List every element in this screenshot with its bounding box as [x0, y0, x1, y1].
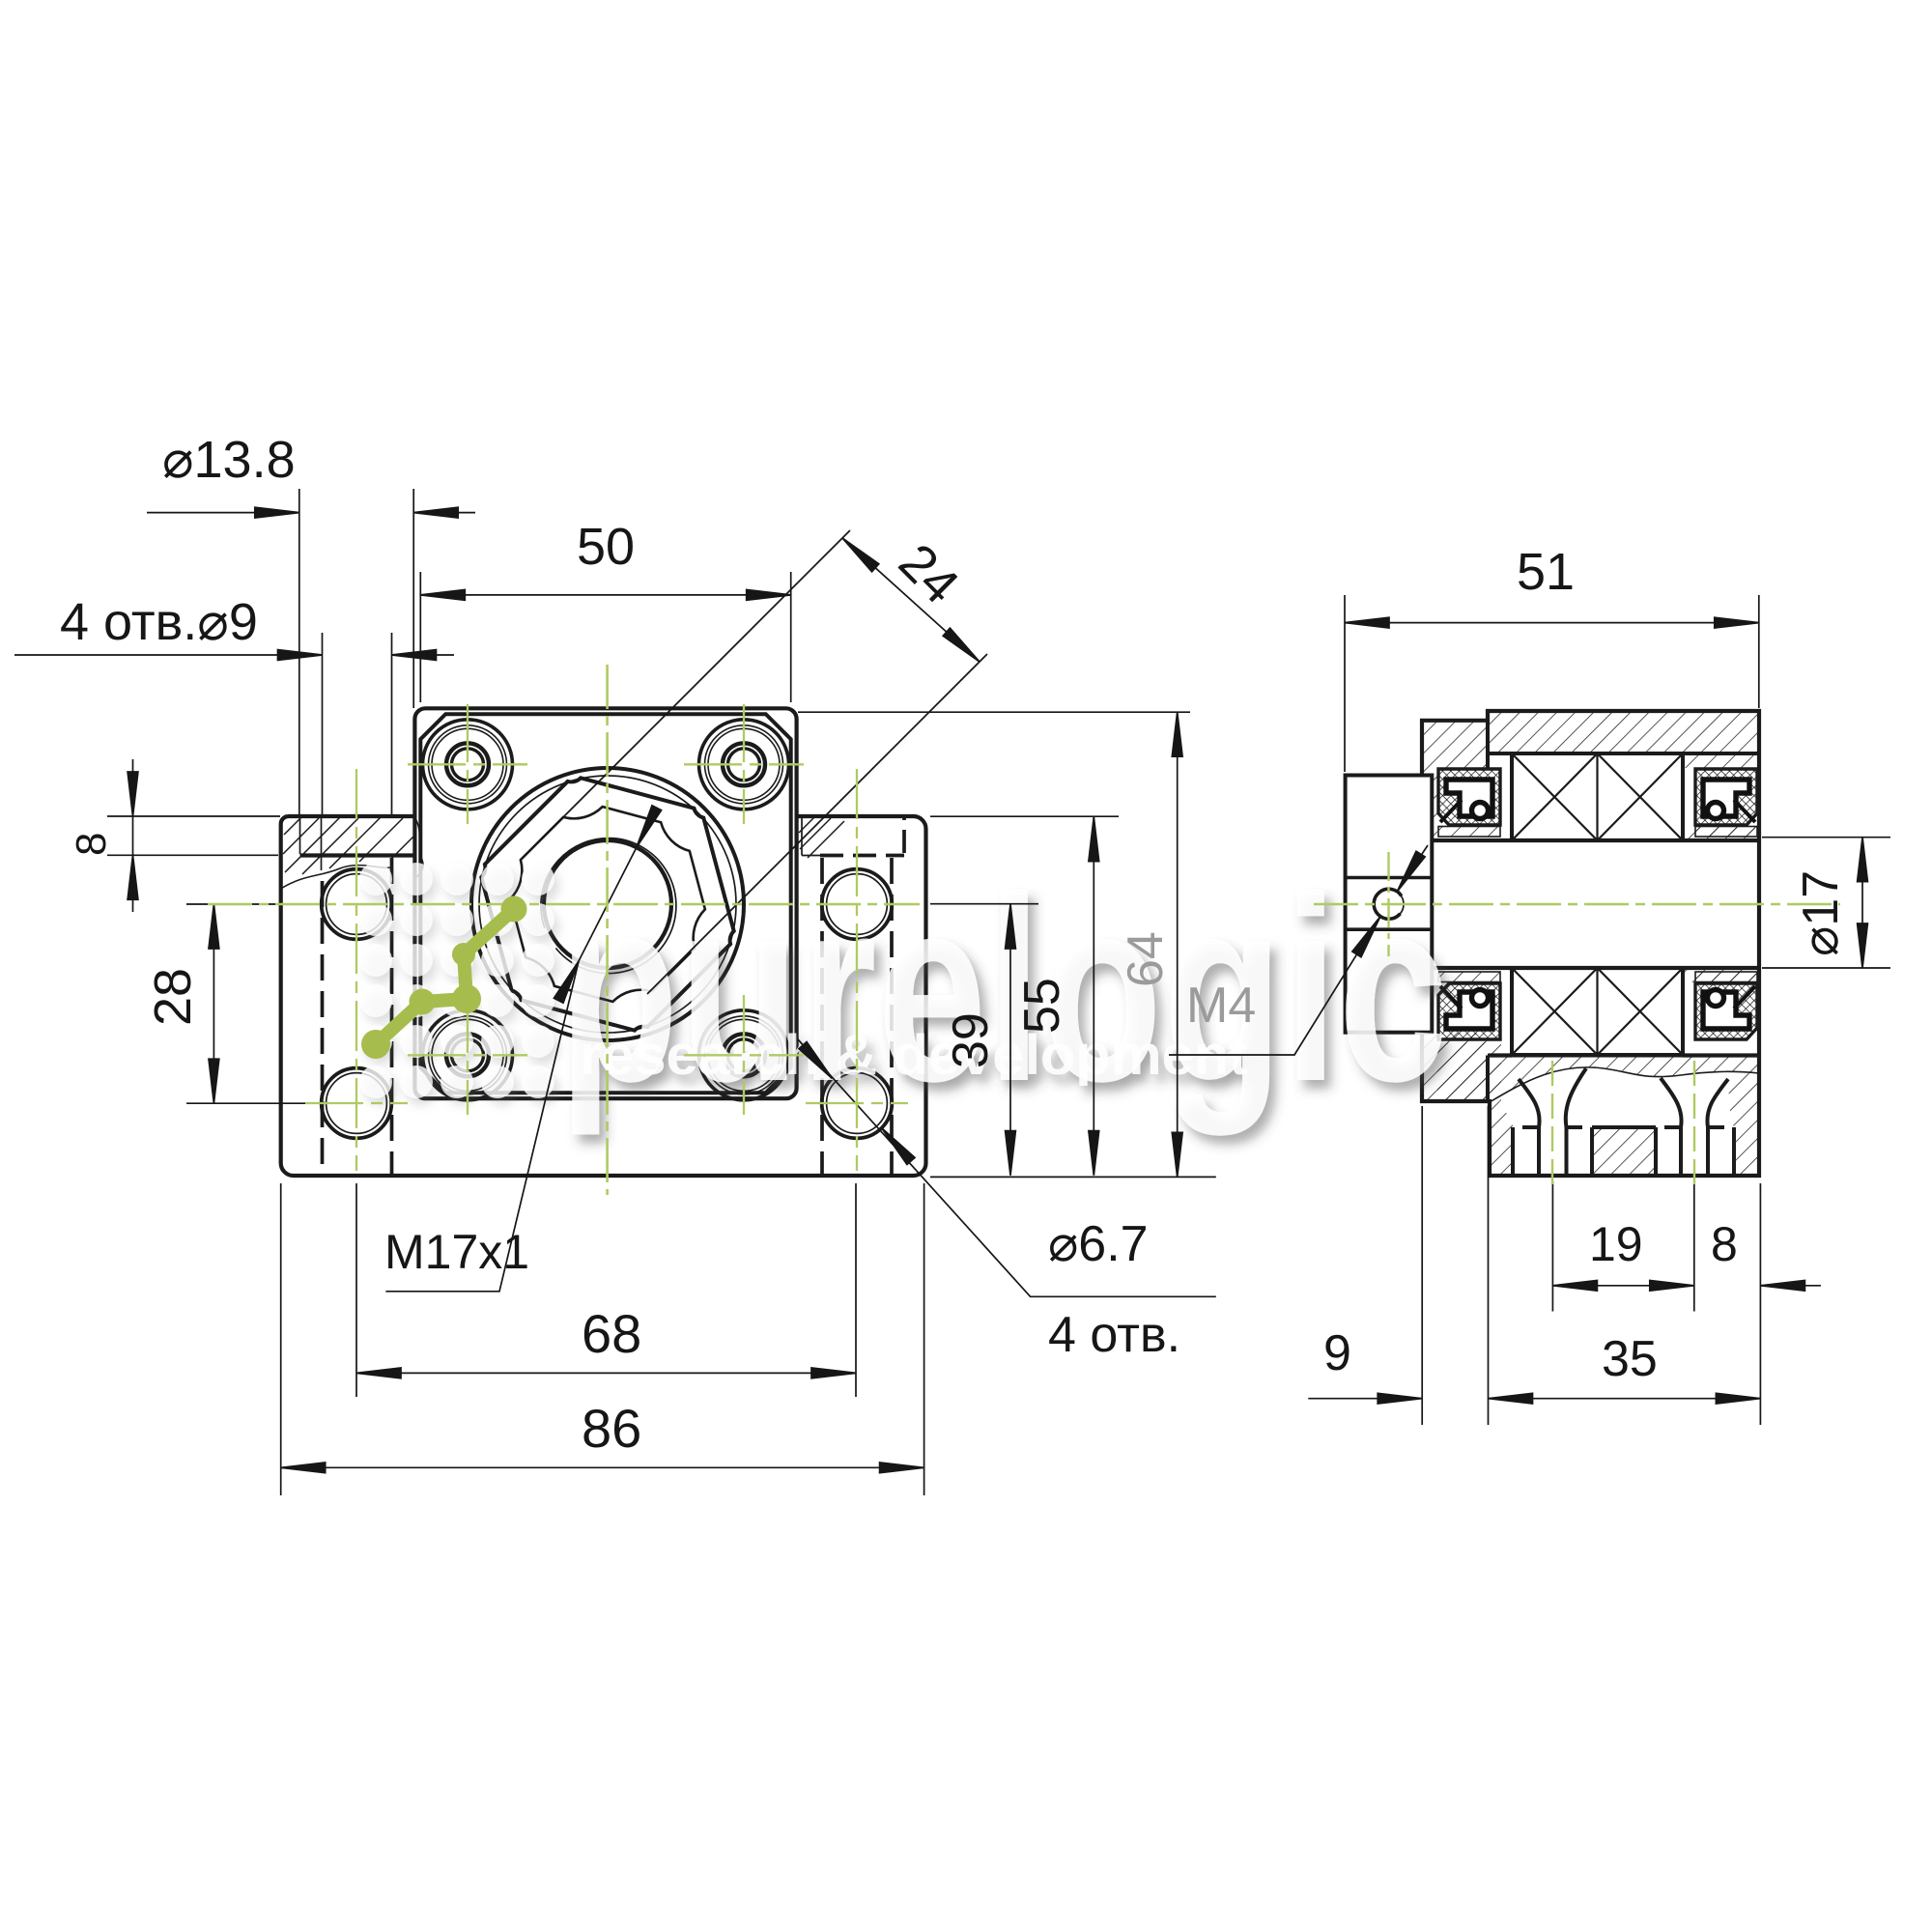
- svg-text:86: 86: [582, 1398, 641, 1459]
- svg-text:9: 9: [1323, 1325, 1351, 1381]
- svg-text:50: 50: [577, 518, 635, 576]
- svg-text:19: 19: [1589, 1217, 1643, 1271]
- svg-text:M4: M4: [1186, 978, 1256, 1034]
- svg-text:35: 35: [1602, 1331, 1658, 1387]
- svg-text:24: 24: [888, 533, 970, 615]
- svg-text:⌀17: ⌀17: [1793, 870, 1849, 956]
- svg-text:8: 8: [1711, 1217, 1738, 1271]
- svg-text:4 отв.⌀9: 4 отв.⌀9: [60, 593, 258, 651]
- svg-text:68: 68: [582, 1303, 641, 1364]
- svg-text:55: 55: [1014, 978, 1070, 1034]
- svg-text:⌀6.7: ⌀6.7: [1048, 1216, 1149, 1272]
- svg-text:51: 51: [1517, 543, 1575, 601]
- svg-text:64: 64: [1118, 931, 1174, 987]
- svg-text:8: 8: [68, 833, 115, 856]
- svg-text:⌀13.8: ⌀13.8: [162, 431, 296, 489]
- svg-text:4 отв.: 4 отв.: [1048, 1307, 1180, 1363]
- svg-text:39: 39: [943, 1012, 999, 1068]
- svg-text:M17x1: M17x1: [384, 1225, 529, 1279]
- svg-text:28: 28: [144, 968, 202, 1026]
